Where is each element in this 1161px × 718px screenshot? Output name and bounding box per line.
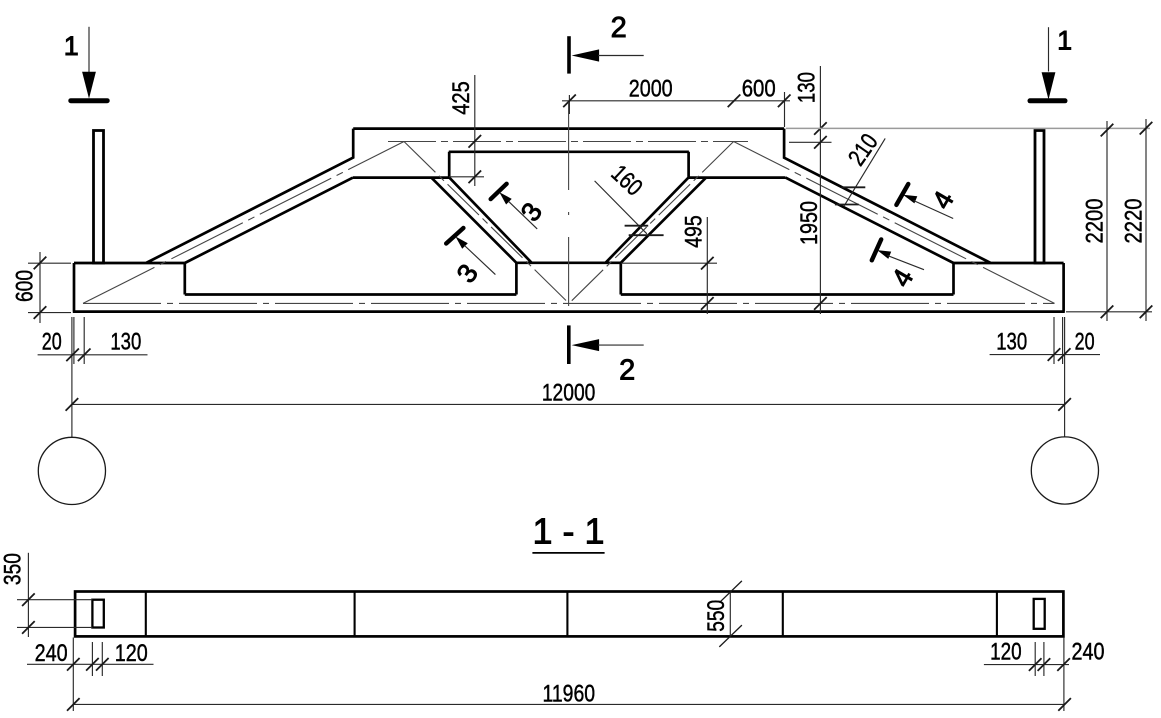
svg-text:240: 240 [1072, 638, 1105, 665]
svg-text:495: 495 [680, 215, 707, 248]
svg-text:1: 1 [1057, 26, 1072, 56]
svg-text:12000: 12000 [542, 378, 596, 406]
svg-text:600: 600 [10, 270, 38, 302]
svg-text:240: 240 [35, 639, 68, 666]
svg-text:1 - 1: 1 - 1 [532, 511, 604, 552]
svg-text:1: 1 [64, 31, 79, 61]
svg-text:2000: 2000 [629, 75, 673, 102]
svg-text:20: 20 [1075, 329, 1095, 355]
svg-text:1950: 1950 [795, 201, 822, 245]
svg-text:350: 350 [0, 553, 26, 585]
svg-text:130: 130 [996, 328, 1027, 355]
svg-text:600: 600 [742, 75, 776, 102]
svg-text:2220: 2220 [1120, 199, 1147, 244]
svg-text:130: 130 [793, 72, 820, 103]
svg-text:2: 2 [611, 12, 627, 44]
svg-text:120: 120 [990, 637, 1021, 665]
svg-text:2: 2 [619, 355, 635, 387]
svg-text:425: 425 [447, 81, 474, 115]
svg-text:130: 130 [110, 328, 141, 355]
svg-text:20: 20 [42, 329, 62, 355]
svg-text:2200: 2200 [1081, 199, 1108, 244]
svg-text:120: 120 [115, 639, 148, 666]
svg-text:550: 550 [702, 600, 730, 632]
svg-text:11960: 11960 [543, 680, 596, 707]
